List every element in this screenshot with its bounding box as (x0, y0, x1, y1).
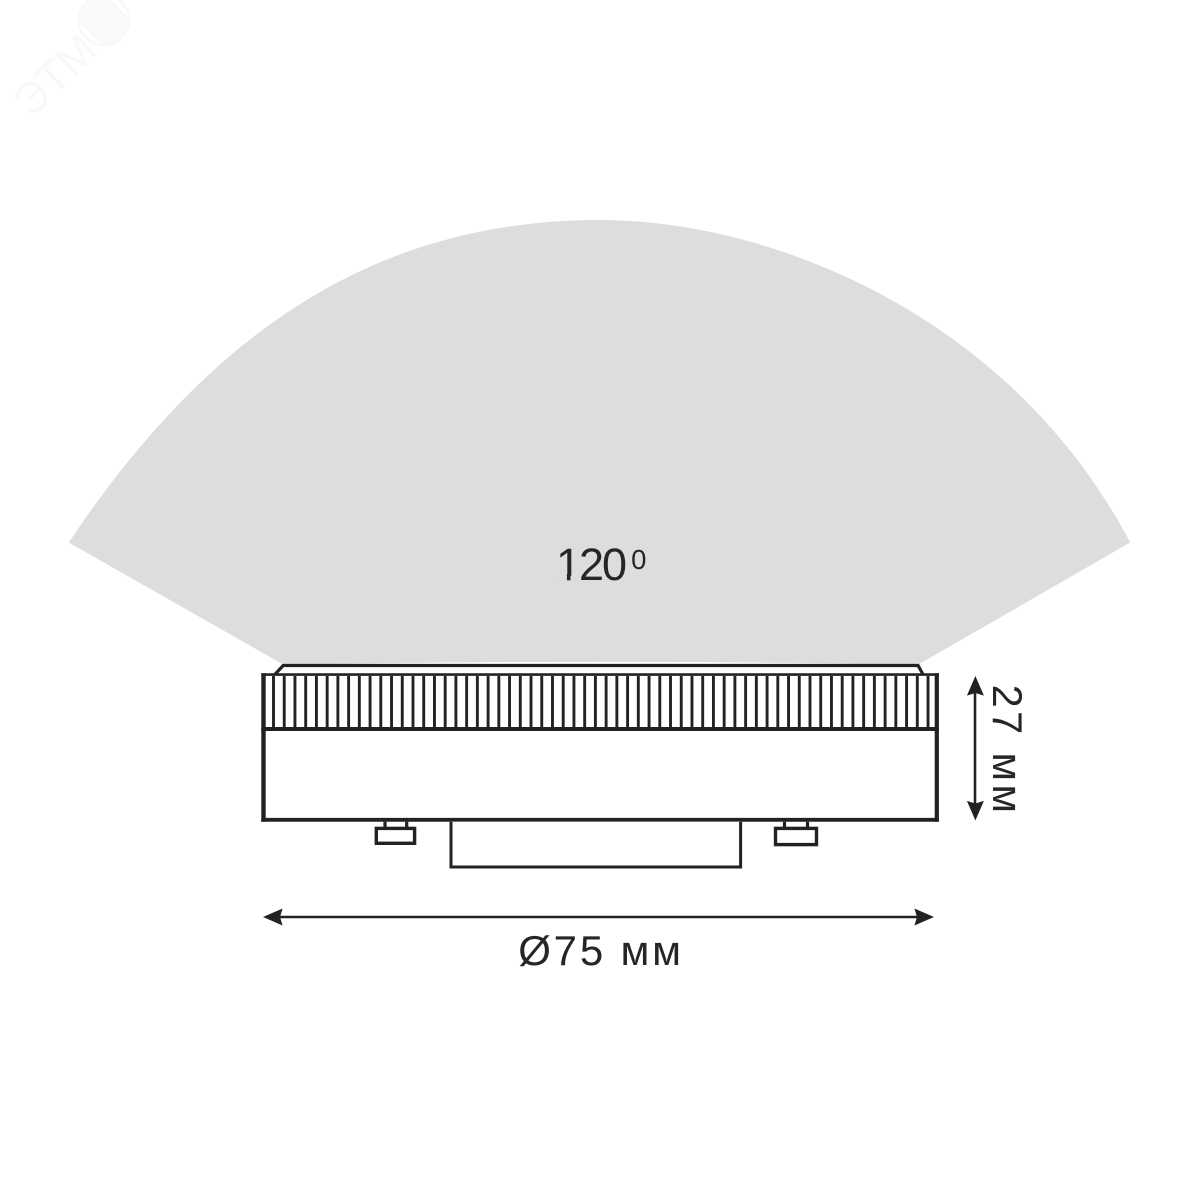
svg-text:Ø75 мм: Ø75 мм (518, 927, 684, 974)
svg-text:27 мм: 27 мм (984, 685, 1031, 817)
